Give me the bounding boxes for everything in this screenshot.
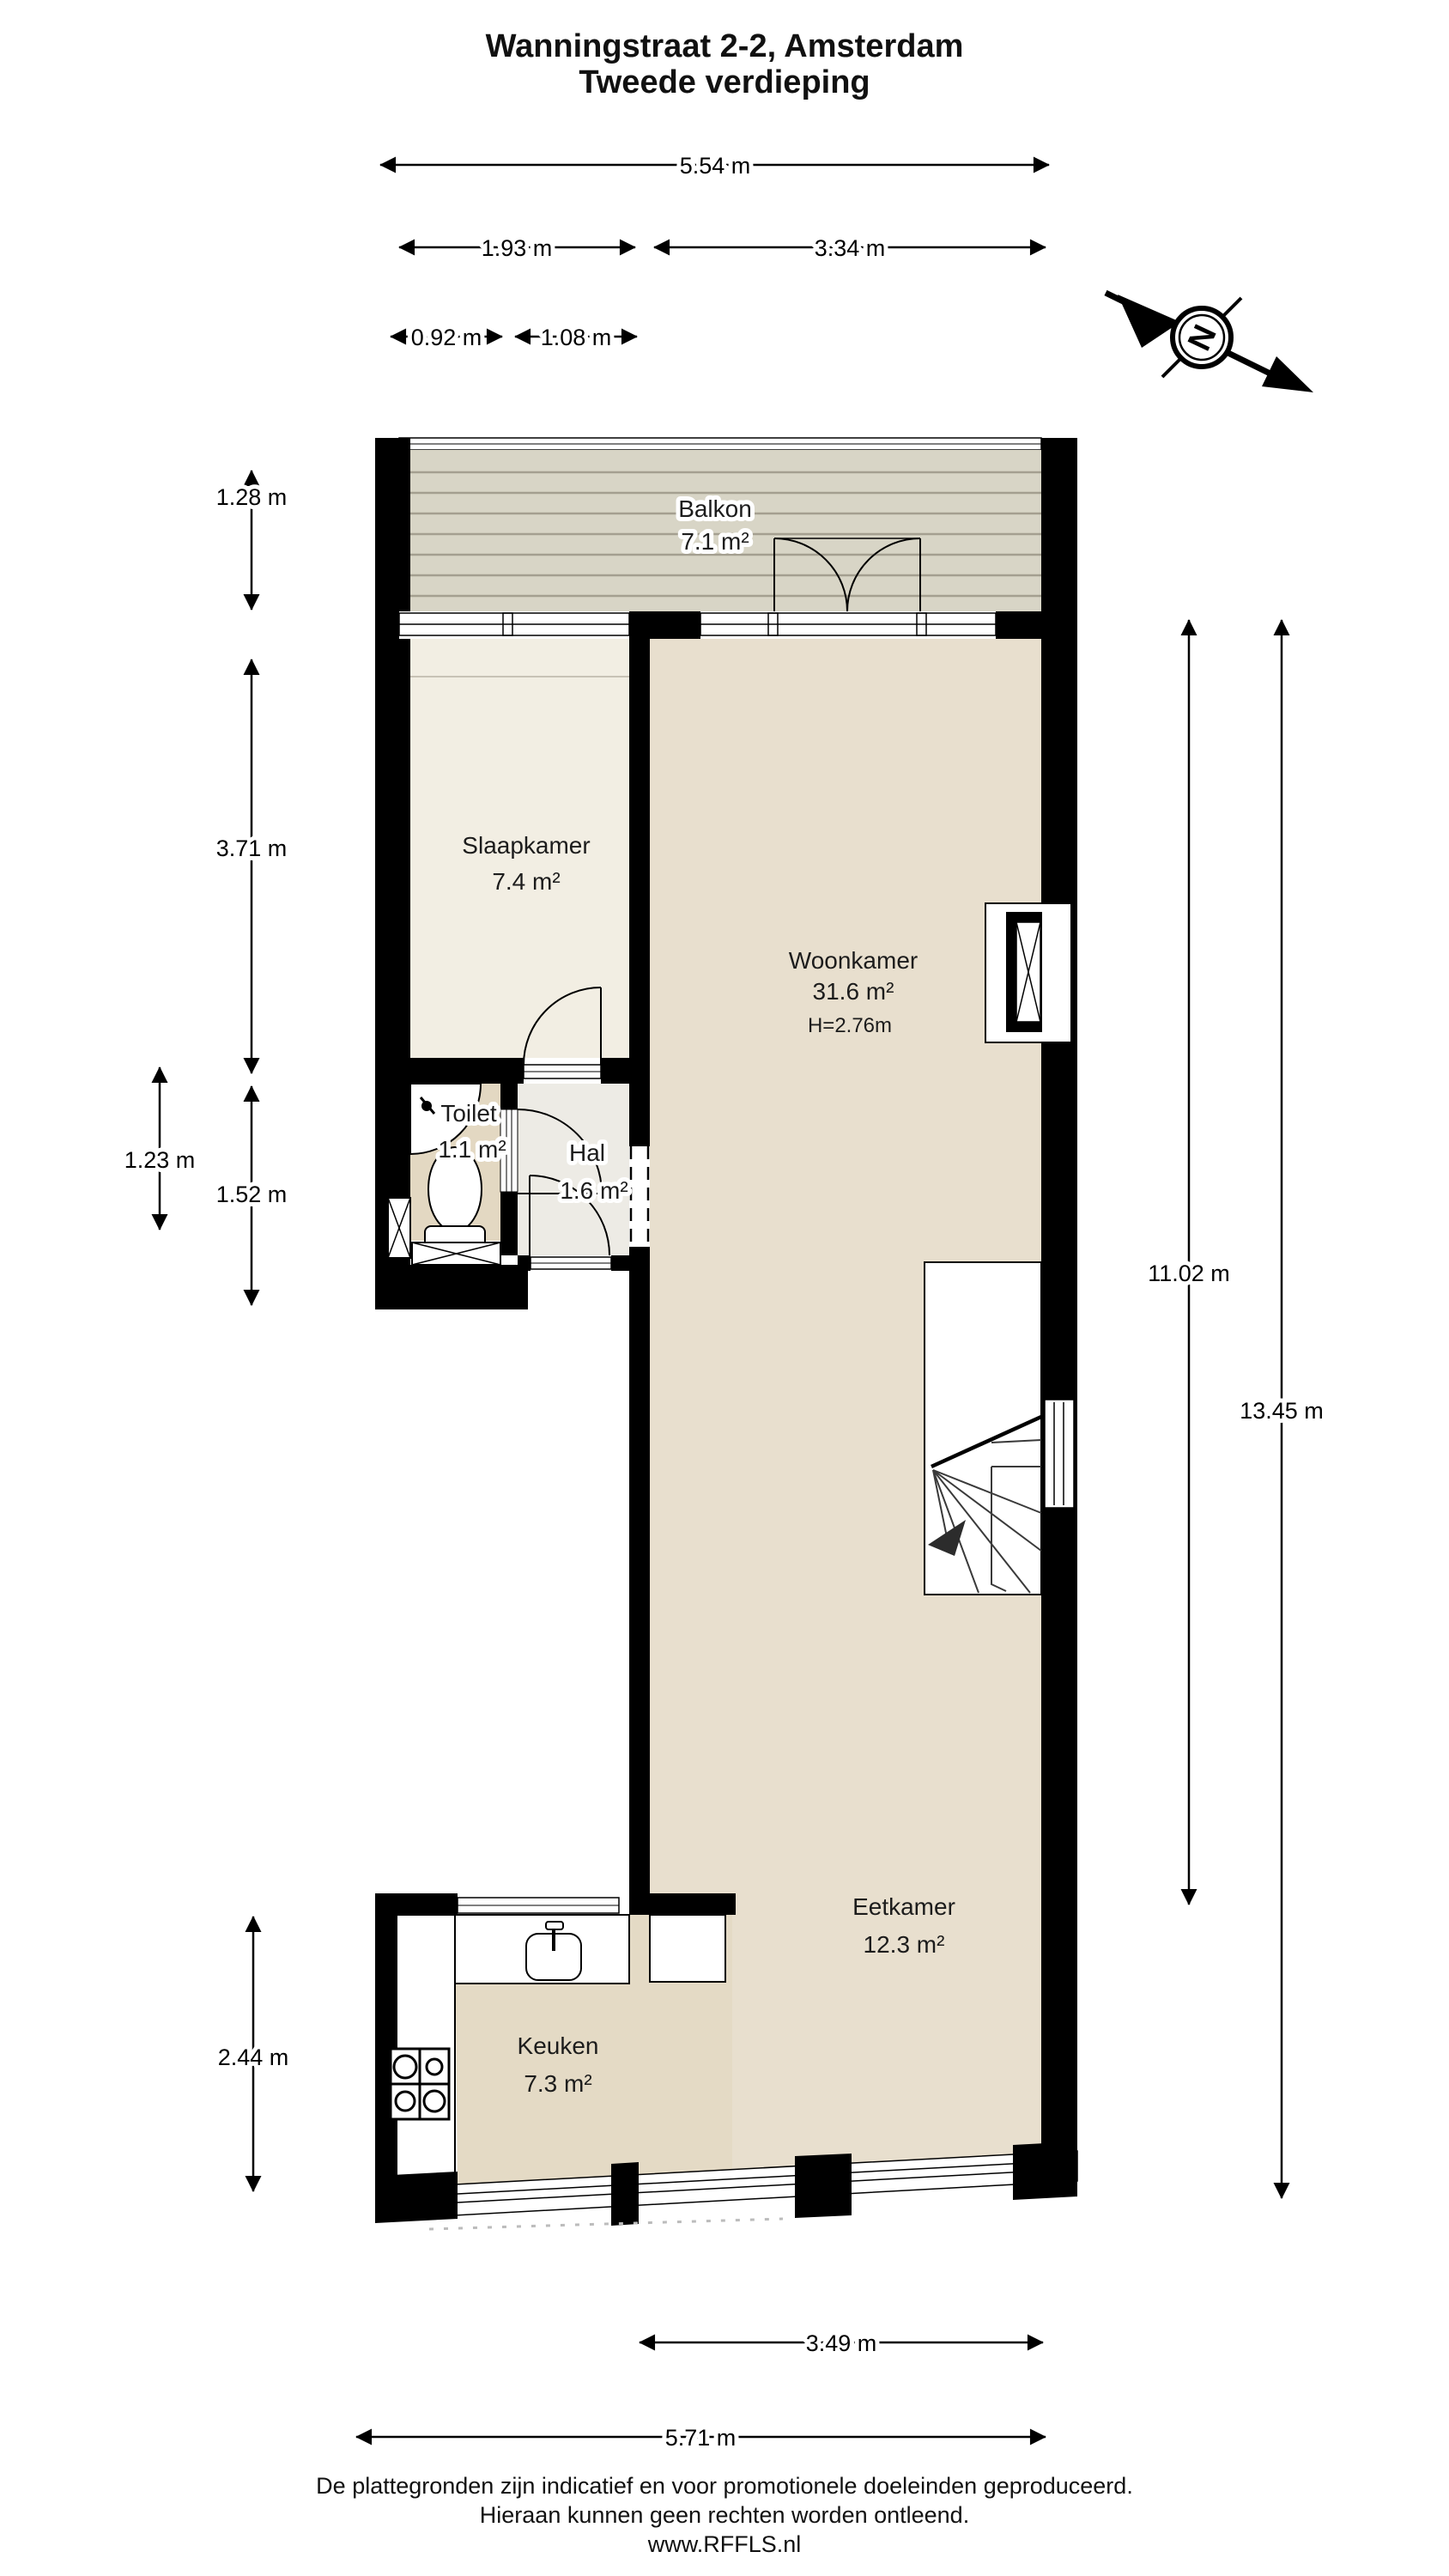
wall-keuken-woonkamer — [629, 1893, 736, 1915]
title-line2: Tweede verdieping — [579, 64, 870, 100]
footer-disclaimer-2: Hieraan kunnen geen rechten worden ontle… — [480, 2502, 969, 2528]
label-keuken-area: 7.3 m² — [524, 2070, 591, 2097]
label-eetkamer-area: 12.3 m² — [864, 1931, 945, 1958]
footer: De plattegronden zijn indicatief en voor… — [316, 2473, 1133, 2557]
label-slaapkamer: Slaapkamer — [462, 832, 590, 859]
chimney — [985, 903, 1071, 1042]
wall-chunk — [375, 2172, 458, 2223]
toilet-icon — [425, 1147, 485, 1254]
floorplan-page: Wanningstraat 2-2, Amsterdam Tweede verd… — [0, 0, 1449, 2576]
wall-chunk — [996, 611, 1077, 639]
wall-toilet-south — [375, 1265, 528, 1309]
label-slaapkamer-area: 7.4 m² — [492, 868, 560, 895]
floorplan-canvas: Wanningstraat 2-2, Amsterdam Tweede verd… — [0, 0, 1449, 2576]
wall-outer-right — [1041, 438, 1077, 2155]
label-hal-area: 1.6 m² — [560, 1177, 627, 1204]
label-balkon: Balkon — [678, 495, 752, 522]
page-title: Wanningstraat 2-2, Amsterdam Tweede verd… — [486, 28, 964, 100]
label-woonkamer: Woonkamer — [789, 947, 918, 974]
label-balkon-area: 7.1 m² — [681, 528, 749, 555]
window — [1045, 1400, 1074, 1508]
label-woonkamer-area: 31.6 m² — [813, 978, 894, 1005]
label-keuken: Keuken — [518, 2032, 599, 2059]
stairs-icon — [925, 1262, 1041, 1595]
compass-icon: N — [1106, 293, 1313, 392]
dim-bottom-total: 5.71 m — [665, 2425, 737, 2451]
label-eetkamer: Eetkamer — [852, 1893, 955, 1920]
dim-left-kitchen: 2.44 m — [218, 2044, 289, 2070]
dim-top-left: 1.93 m — [482, 235, 553, 261]
wall-hal-woonkamer — [629, 1080, 650, 1146]
dim-left-bedroom: 3.71 m — [216, 835, 288, 861]
wall-slaapkamer-south — [601, 1058, 650, 1084]
dim-top-right: 3.34 m — [815, 235, 886, 261]
room-balkon — [399, 438, 1041, 611]
wall-slaapkamer-south — [375, 1058, 524, 1084]
wall-slaapkamer-woonkamer — [629, 639, 650, 1058]
wall-band-north — [375, 611, 1077, 639]
wall-toilet-hal — [500, 1192, 518, 1255]
wall-chunk — [629, 611, 700, 639]
roof-edge-dashed — [429, 2219, 783, 2229]
opening-hal-woonkamer — [629, 1146, 650, 1247]
footer-disclaimer-1: De plattegronden zijn indicatief en voor… — [316, 2473, 1133, 2499]
stove-icon — [391, 2049, 449, 2119]
dim-bottom-dining: 3.49 m — [806, 2330, 877, 2356]
shaft-crossbox — [412, 1242, 500, 1265]
wall-chunk — [611, 2162, 639, 2226]
wall-chunk — [611, 1255, 650, 1271]
shaft-crossbox — [388, 1198, 410, 1258]
dim-left-toilet: 1.52 m — [216, 1182, 288, 1207]
window — [458, 1898, 619, 1913]
dim-window-right: 1.08 m — [541, 325, 612, 350]
dim-window-left: 0.92 m — [411, 325, 482, 350]
dim-right-inner: 11.02 m — [1148, 1261, 1230, 1286]
label-hal: Hal — [569, 1139, 605, 1166]
title-line1: Wanningstraat 2-2, Amsterdam — [486, 28, 964, 64]
room-hal-floor — [518, 1084, 629, 1255]
wall-outer-left — [375, 438, 410, 1309]
dim-top-total: 5.54 m — [680, 153, 751, 179]
wall-chunk — [375, 611, 399, 639]
dim-left-toilet-outer: 1.23 m — [124, 1147, 196, 1173]
wall-chunk — [795, 2154, 852, 2218]
label-toilet-area: 1.1 m² — [438, 1136, 506, 1163]
wall-toilet-hal — [500, 1084, 518, 1109]
wall-mid-left — [629, 1271, 650, 1895]
kitchen-cupboard — [650, 1915, 725, 1982]
wall-chunk — [1013, 2142, 1077, 2200]
dim-right-outer: 13.45 m — [1240, 1398, 1324, 1424]
label-toilet: Toilet — [440, 1100, 497, 1127]
footer-website: www.RFFLS.nl — [647, 2531, 802, 2557]
dim-left-balcony: 1.28 m — [216, 484, 288, 510]
label-woonkamer-height: H=2.76m — [808, 1014, 892, 1037]
